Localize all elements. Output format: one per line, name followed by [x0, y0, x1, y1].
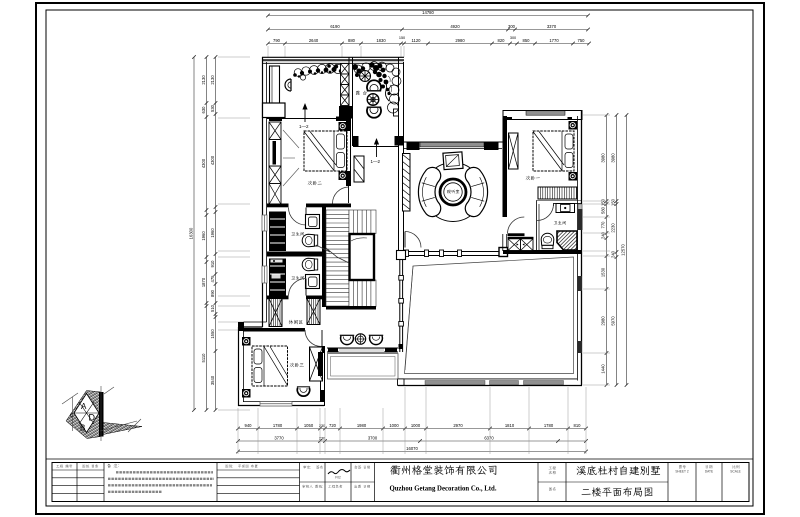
- svg-text:Quzhou Getang Decoration Co.,: Quzhou Getang Decoration Co., Ltd.: [389, 486, 496, 493]
- svg-text:16070: 16070: [406, 446, 418, 451]
- svg-text:3980: 3980: [601, 153, 606, 163]
- svg-text:720: 720: [329, 423, 337, 428]
- svg-text:2130: 2130: [210, 75, 215, 85]
- svg-text::: :: [322, 485, 323, 489]
- svg-text:16300: 16300: [189, 227, 194, 239]
- svg-text:580: 580: [601, 206, 606, 214]
- svg-text:1770: 1770: [549, 38, 559, 43]
- svg-text:3370: 3370: [547, 24, 557, 29]
- svg-text:150: 150: [601, 198, 606, 206]
- svg-text:F02: F02: [335, 476, 341, 480]
- svg-text:B: B: [80, 424, 85, 433]
- svg-text:1780: 1780: [544, 423, 554, 428]
- svg-text:630: 630: [201, 106, 206, 114]
- svg-text:1000: 1000: [389, 423, 399, 428]
- svg-text:1960: 1960: [210, 228, 215, 238]
- svg-text:6370: 6370: [484, 436, 494, 441]
- svg-text:4300: 4300: [201, 158, 206, 168]
- svg-text:820: 820: [498, 38, 506, 43]
- svg-text:4920: 4920: [450, 24, 460, 29]
- svg-text::: :: [310, 465, 311, 469]
- svg-text:510: 510: [210, 304, 215, 312]
- svg-text:1870: 1870: [201, 277, 206, 287]
- svg-text:1—2: 1—2: [299, 124, 309, 129]
- svg-text:14780: 14780: [422, 10, 434, 15]
- svg-text:1050: 1050: [304, 423, 314, 428]
- svg-text:880: 880: [348, 38, 356, 43]
- svg-text:300: 300: [510, 36, 516, 40]
- svg-text:2230: 2230: [611, 223, 616, 233]
- svg-text:3980: 3980: [611, 153, 616, 163]
- svg-text:940: 940: [245, 423, 253, 428]
- svg-text:150: 150: [611, 198, 616, 206]
- svg-text:2970: 2970: [453, 423, 463, 428]
- svg-text:2980: 2980: [455, 38, 465, 43]
- svg-text:D: D: [89, 413, 96, 423]
- svg-text:1980: 1980: [357, 423, 367, 428]
- svg-text:DATE: DATE: [705, 470, 713, 474]
- svg-text:1120: 1120: [411, 38, 421, 43]
- svg-text:4300: 4300: [210, 155, 215, 165]
- svg-text::: :: [232, 464, 233, 468]
- svg-text:790: 790: [273, 38, 281, 43]
- svg-text:475: 475: [210, 275, 215, 283]
- svg-text:770: 770: [601, 221, 606, 229]
- svg-text:1780: 1780: [273, 423, 283, 428]
- svg-text:SCALE: SCALE: [730, 470, 740, 474]
- svg-text:890: 890: [210, 289, 215, 297]
- svg-text:A: A: [81, 402, 87, 411]
- svg-text:1000: 1000: [411, 423, 421, 428]
- svg-text:1—2: 1—2: [371, 159, 381, 164]
- svg-text:2130: 2130: [201, 75, 206, 85]
- svg-text:6190: 6190: [330, 24, 340, 29]
- svg-text:3770: 3770: [274, 436, 284, 441]
- svg-text:3700: 3700: [368, 436, 378, 441]
- svg-text:2980: 2980: [601, 316, 606, 326]
- svg-text:810: 810: [574, 423, 582, 428]
- svg-text:1530: 1530: [601, 267, 606, 277]
- svg-text:240: 240: [611, 250, 616, 258]
- svg-text:1550: 1550: [210, 329, 215, 339]
- svg-text:2640: 2640: [309, 38, 319, 43]
- svg-text:1440: 1440: [601, 364, 606, 374]
- svg-text:12570: 12570: [621, 244, 626, 256]
- svg-text:3540: 3540: [210, 375, 215, 385]
- svg-text::: :: [118, 463, 119, 468]
- svg-text:910: 910: [210, 260, 215, 268]
- svg-text:1960: 1960: [201, 231, 206, 241]
- svg-text:SHEET 2: SHEET 2: [675, 470, 688, 474]
- svg-text:300: 300: [508, 24, 516, 29]
- svg-text:1810: 1810: [505, 423, 515, 428]
- svg-text:240: 240: [601, 231, 606, 239]
- svg-text:c: c: [70, 412, 74, 419]
- svg-text:750: 750: [578, 38, 586, 43]
- svg-text:850: 850: [523, 38, 531, 43]
- svg-text:5110: 5110: [201, 353, 206, 363]
- svg-text:150: 150: [399, 36, 405, 40]
- svg-text:5970: 5970: [611, 316, 616, 326]
- svg-text:530: 530: [210, 104, 215, 112]
- svg-text:1830: 1830: [376, 38, 386, 43]
